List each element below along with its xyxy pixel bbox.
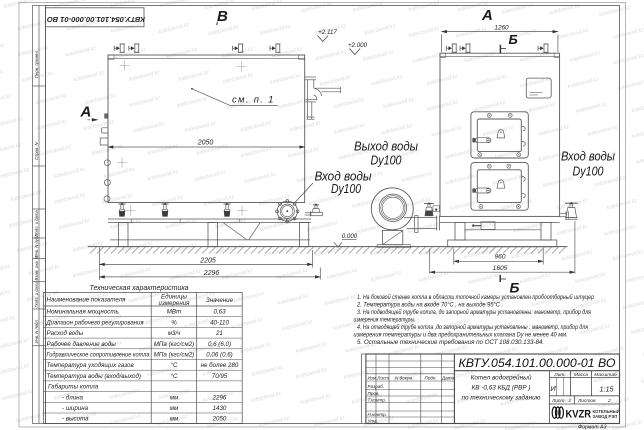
svg-text:Н.контр.: Н.контр. — [368, 412, 387, 417]
svg-text:Температура воды (вход/выход): Температура воды (вход/выход) — [47, 373, 141, 380]
svg-text:960: 960 — [494, 254, 505, 261]
svg-text:И: И — [550, 384, 556, 393]
svg-text:см. п. 1: см. п. 1 — [232, 95, 275, 106]
svg-text:измерения: измерения — [159, 300, 191, 307]
svg-text:0,63: 0,63 — [213, 309, 226, 316]
svg-text:не более 280: не более 280 — [201, 362, 239, 369]
svg-text:4. На отводящей трубе котла ,: 4. На отводящей трубе котла ,до запорной… — [357, 324, 589, 331]
svg-text:Перв. примен.: Перв. примен. — [34, 50, 39, 78]
svg-text:KVZR: KVZR — [566, 408, 592, 420]
svg-text:21: 21 — [215, 330, 223, 337]
svg-text:Листов: Листов — [577, 398, 596, 404]
svg-text:Dy100: Dy100 — [573, 165, 604, 179]
svg-text:1260: 1260 — [494, 24, 509, 31]
svg-text:Подп. и дата: Подп. и дата — [34, 281, 39, 308]
svg-text:измерения температуры и два пр: измерения температуры и два предохраните… — [354, 332, 568, 339]
svg-text:Дата: Дата — [441, 375, 455, 380]
svg-text:Инв. N подл.: Инв. N подл. — [34, 319, 39, 343]
svg-text:2205: 2205 — [199, 258, 216, 265]
svg-text:Масса: Масса — [574, 372, 589, 378]
svg-text:5. Остальные технические треб: 5. Остальные технические требования по О… — [357, 339, 544, 346]
svg-text:Рабочее давление воды: Рабочее давление воды — [47, 341, 117, 348]
svg-text:Dy100: Dy100 — [331, 182, 361, 196]
svg-text:2296: 2296 — [212, 394, 227, 401]
svg-text:+2.117: +2.117 — [318, 29, 337, 36]
svg-text:Инв. N дубл.: Инв. N дубл. — [34, 233, 39, 257]
svg-text:1605: 1605 — [493, 265, 508, 272]
svg-text:2. Температура воды на входе: 2. Температура воды на входе 70°С , на в… — [356, 302, 503, 309]
svg-text:МВт: МВт — [167, 309, 181, 316]
svg-text:Справ. N: Справ. N — [34, 142, 39, 160]
svg-text:Dy100: Dy100 — [371, 154, 402, 168]
svg-text:Гидравлическое сопротивление к: Гидравлическое сопротивление котла — [47, 352, 150, 359]
svg-text:Лит.: Лит. — [553, 372, 565, 378]
svg-text:МПа (кгс/см2): МПа (кгс/см2) — [154, 352, 194, 359]
svg-text:1:15: 1:15 — [600, 385, 615, 394]
svg-text:Подп.: Подп. — [425, 375, 437, 380]
svg-text:0,06 (0,6): 0,06 (0,6) — [206, 352, 232, 359]
svg-text:°С: °С — [171, 373, 178, 380]
svg-text:Т.контр.: Т.контр. — [368, 398, 387, 403]
svg-text:1430: 1430 — [213, 405, 227, 412]
svg-text:N докум.: N докум. — [395, 375, 414, 380]
svg-text:Лист: Лист — [551, 398, 564, 404]
svg-text:40-110: 40-110 — [210, 319, 229, 326]
svg-text:Наименование показателя: Наименование показателя — [47, 297, 127, 304]
svg-text:Б: Б — [509, 32, 518, 47]
svg-text:1: 1 — [569, 398, 572, 404]
svg-text:мм: мм — [170, 394, 179, 401]
svg-text:А: А — [481, 7, 493, 24]
svg-text:- высота: - высота — [62, 416, 89, 423]
svg-text:Выход воды: Выход воды — [354, 140, 418, 154]
svg-text:Утв.: Утв. — [368, 418, 378, 423]
svg-text:70/95: 70/95 — [212, 373, 228, 380]
svg-text:Расход воды: Расход воды — [47, 330, 84, 337]
svg-text:Подп. и дата: Подп. и дата — [34, 210, 39, 237]
svg-text:Температура уходящих газов: Температура уходящих газов — [47, 362, 135, 369]
svg-text:- ширина: - ширина — [62, 405, 89, 412]
svg-text:Разраб.: Разраб. — [368, 384, 385, 389]
svg-text:2: 2 — [607, 398, 611, 404]
svg-text:Значение: Значение — [206, 297, 234, 304]
svg-text:2050: 2050 — [212, 416, 227, 423]
svg-text:3. На подводящей трубе котла,: 3. На подводящей трубе котла, до запорно… — [357, 309, 592, 316]
svg-text:А: А — [80, 104, 92, 121]
svg-text:Техническая характеристика: Техническая характеристика — [89, 285, 188, 292]
svg-text:измерения температуры.: измерения температуры. — [354, 317, 416, 324]
svg-text:КВТУ.054.101.00.000-01 ВО: КВТУ.054.101.00.000-01 ВО — [459, 356, 616, 370]
svg-text:1. На боковой стенке котла в: 1. На боковой стенке котла в области топ… — [357, 294, 594, 301]
svg-text:Масштаб: Масштаб — [594, 372, 617, 378]
svg-text:Диапазон рабочего регулировани: Диапазон рабочего регулирования — [46, 319, 145, 326]
svg-text:2296: 2296 — [203, 270, 220, 277]
svg-text:мм: мм — [170, 405, 179, 412]
svg-text:по техническому заданию: по техническому заданию — [462, 393, 541, 401]
svg-text:2050: 2050 — [197, 140, 214, 147]
svg-text:0.000: 0.000 — [342, 233, 358, 240]
svg-text:МПа (кгс/см2): МПа (кгс/см2) — [154, 341, 194, 348]
svg-text:- длина: - длина — [62, 394, 84, 401]
svg-text:Формат А3: Формат А3 — [578, 425, 606, 430]
svg-text:ЗАВОД РЭП: ЗАВОД РЭП — [593, 414, 618, 419]
svg-text:В: В — [217, 8, 228, 25]
svg-text:°С: °С — [171, 362, 178, 369]
svg-text:КВТУ.054.101.00.000-01 ВО: КВТУ.054.101.00.000-01 ВО — [47, 15, 145, 24]
svg-text:Вход воды: Вход воды — [561, 150, 615, 164]
svg-text:Номинальная мощность: Номинальная мощность — [47, 309, 119, 316]
svg-text:%: % — [171, 319, 177, 326]
svg-text:Изм.Лист: Изм.Лист — [368, 375, 390, 380]
svg-text:0,6 (6,0): 0,6 (6,0) — [208, 341, 231, 348]
svg-text:КВ -0,63 КБД (РВР ): КВ -0,63 КБД (РВР ) — [471, 385, 530, 392]
svg-text:м3/ч: м3/ч — [168, 330, 181, 337]
svg-text:Котел водогрейный: Котел водогрейный — [471, 374, 532, 382]
svg-text:Взам. инв. N: Взам. инв. N — [34, 255, 39, 280]
svg-text:мм: мм — [170, 416, 179, 423]
svg-text:Габариты котла: Габариты котла — [48, 384, 99, 391]
svg-text:Пров.: Пров. — [368, 391, 380, 396]
svg-text:+2.000: +2.000 — [348, 42, 368, 49]
